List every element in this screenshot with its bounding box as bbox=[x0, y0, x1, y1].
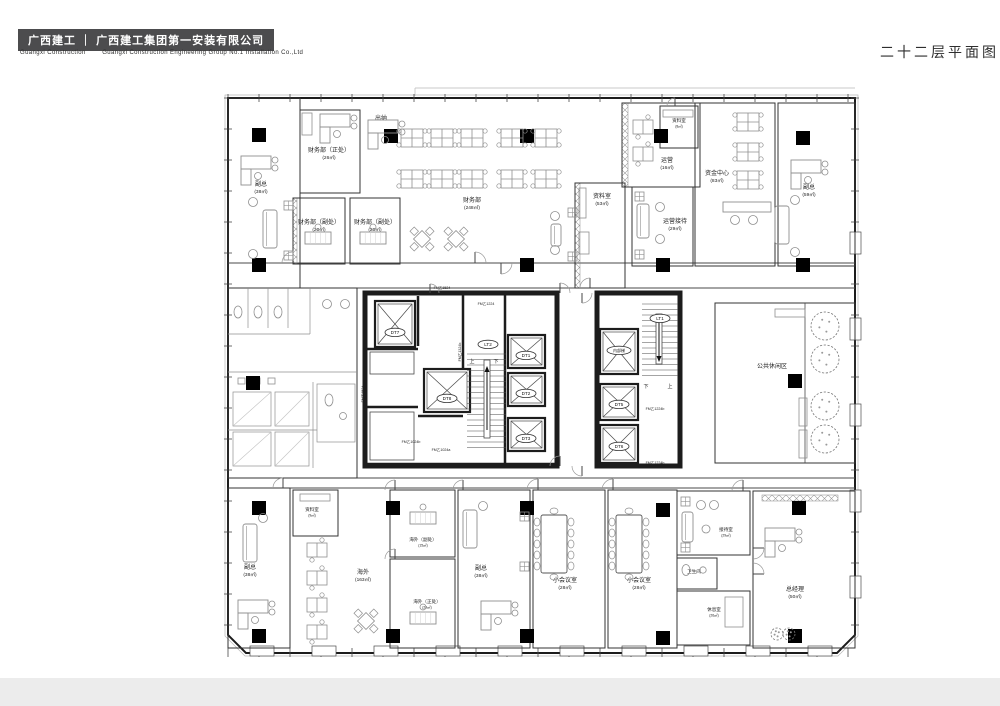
stair-direction: 上 bbox=[667, 383, 672, 390]
company-logo-text: 广西建工 ｜ 广西建工集团第一安装有限公司 bbox=[18, 29, 274, 51]
room-label-zl53: 资料室(53㎡) bbox=[593, 192, 611, 207]
elevator-label: DT5 bbox=[615, 402, 624, 407]
door-code: FM乙1024a bbox=[432, 447, 451, 452]
door-code: FM乙1024b bbox=[402, 439, 421, 444]
page-bottom-strip bbox=[0, 678, 1000, 706]
column bbox=[656, 258, 670, 272]
room-label-gm: 总经理(50㎡) bbox=[786, 585, 804, 600]
column bbox=[386, 501, 400, 515]
stair-direction: 下 bbox=[643, 384, 648, 390]
column bbox=[252, 128, 266, 142]
room-label-vp_tl: 副总(38㎡) bbox=[254, 180, 268, 195]
column bbox=[520, 258, 534, 272]
door-code: FM乙1324b bbox=[457, 343, 462, 362]
column bbox=[252, 501, 266, 515]
column bbox=[796, 131, 810, 145]
drawing-title: 二十二层平面图 bbox=[880, 42, 999, 62]
column bbox=[520, 629, 534, 643]
room-label-yy: 运营(16㎡) bbox=[660, 156, 674, 171]
floor-plan: 副总(38㎡)财务部（正处）(26㎡)财务部（副处）(20㎡)财务部（副处）(2… bbox=[205, 82, 865, 676]
stair-direction: 下 bbox=[493, 359, 498, 365]
room-label-leisure: 公共休闲区 bbox=[757, 362, 787, 370]
column bbox=[252, 258, 266, 272]
column bbox=[656, 503, 670, 517]
room-label-cashier: 出纳 bbox=[375, 114, 387, 122]
door-code: FM乙1524 bbox=[434, 285, 451, 290]
room-label-cwb: 财务部(248㎡) bbox=[463, 196, 481, 211]
elevator-label: DT3 bbox=[522, 436, 531, 441]
elevator-label: DT1 bbox=[522, 353, 531, 358]
column bbox=[792, 501, 806, 515]
room-label-vp_bm: 副总(38㎡) bbox=[474, 564, 488, 579]
column bbox=[384, 129, 398, 143]
room-label-hw: 海外(163㎡) bbox=[355, 568, 371, 583]
column bbox=[656, 631, 670, 645]
door-code: FM乙1224 bbox=[478, 301, 495, 306]
elevator-label: DT2 bbox=[522, 391, 531, 396]
floor-plan-svg: 副总(38㎡)财务部（正处）(26㎡)财务部（副处）(20㎡)财务部（副处）(2… bbox=[205, 82, 865, 676]
stair-label: LT1 bbox=[656, 316, 664, 321]
column bbox=[386, 629, 400, 643]
room-label-vp_tr: 副总(59㎡) bbox=[802, 183, 816, 198]
column bbox=[252, 629, 266, 643]
column bbox=[788, 374, 802, 388]
company-name-english: Guangxi Construction Guangxi Constructio… bbox=[20, 50, 303, 56]
door-code: FM乙1524 bbox=[360, 386, 365, 403]
page: 广西建工 ｜ 广西建工集团第一安装有限公司 Guangxi Constructi… bbox=[0, 0, 1000, 706]
column bbox=[654, 129, 668, 143]
elevator-label: DT8 bbox=[443, 396, 452, 401]
column bbox=[796, 258, 810, 272]
column bbox=[520, 501, 534, 515]
elevator-label: DT6 bbox=[615, 444, 624, 449]
door-code: FM乙1224b bbox=[646, 406, 665, 411]
door-code: FM乙1224b bbox=[646, 460, 665, 465]
stair-direction: 上 bbox=[469, 358, 474, 365]
room-label-vp_bl: 副总(38㎡) bbox=[243, 563, 257, 578]
elevator-label: DT7 bbox=[391, 330, 400, 335]
column bbox=[246, 376, 260, 390]
elevator-label: 内部梯 bbox=[613, 347, 625, 353]
stair-label: LT2 bbox=[484, 342, 492, 347]
